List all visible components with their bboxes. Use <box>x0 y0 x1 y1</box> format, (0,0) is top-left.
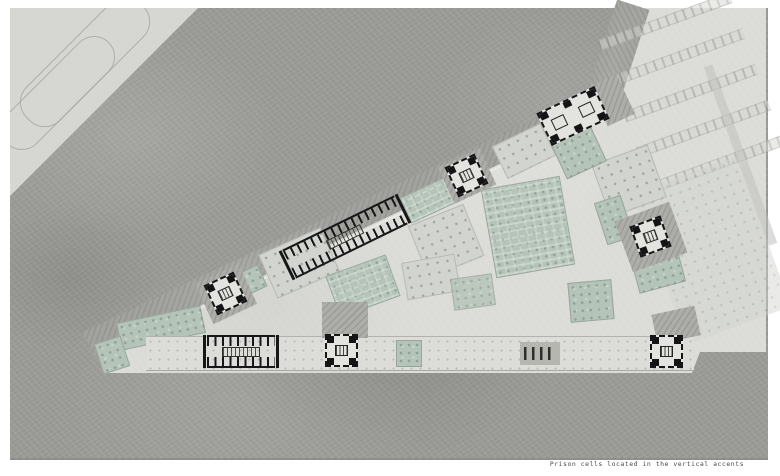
cell-mark <box>660 346 673 357</box>
green-courtyard-strip <box>396 340 422 367</box>
gate-columns <box>524 347 556 360</box>
cell-row <box>207 357 275 368</box>
entry-gate <box>520 342 560 365</box>
cell-mark <box>458 168 474 183</box>
caption: Prison cells located in the vertical acc… <box>550 460 744 468</box>
cell-mark <box>217 286 233 301</box>
tower-pad <box>322 302 368 338</box>
cell-tower <box>650 335 683 368</box>
building-room <box>551 114 569 131</box>
cell-block-endwall <box>203 335 206 368</box>
site-plan-sheet: Prison cells located in the vertical acc… <box>0 0 780 476</box>
green-courtyard <box>567 279 614 323</box>
cell-row <box>207 335 275 346</box>
cell-block-endwall <box>276 335 279 368</box>
cell-mark <box>335 345 348 356</box>
building-room <box>578 101 596 118</box>
linear-cell-block-south <box>203 335 279 368</box>
cell-block-stair <box>222 347 260 357</box>
green-courtyard-large <box>481 176 575 279</box>
cell-tower <box>325 334 358 367</box>
cell-mark <box>643 229 659 244</box>
green-courtyard <box>450 273 496 311</box>
